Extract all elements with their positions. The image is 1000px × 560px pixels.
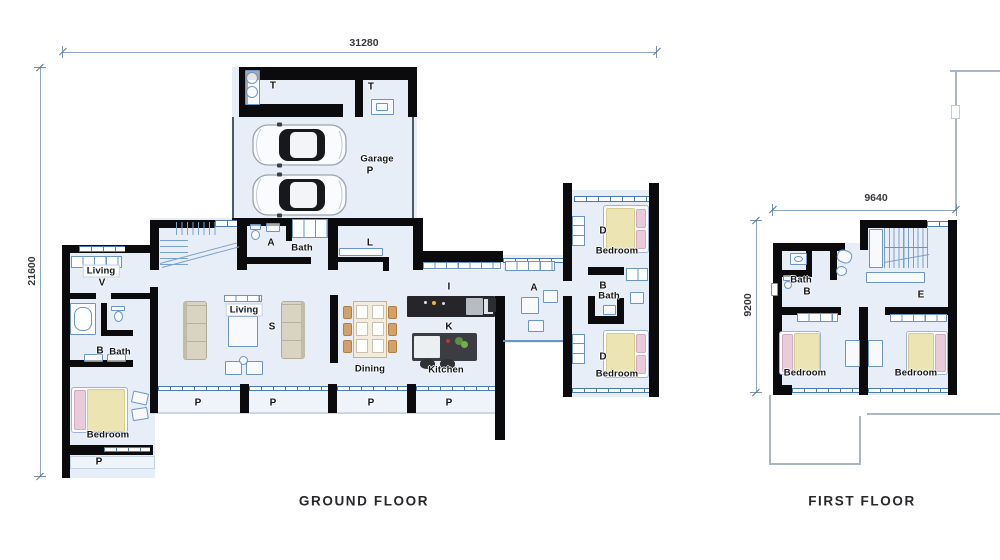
bed-pillow	[636, 334, 646, 353]
bed-pillow	[935, 334, 946, 372]
desk	[845, 340, 860, 367]
room-label-bedroom: Bedroom	[596, 246, 638, 257]
wall	[330, 295, 338, 363]
wall	[338, 257, 388, 262]
roof-outline	[769, 395, 771, 465]
place-setting	[372, 305, 384, 319]
dining-chair	[343, 323, 352, 336]
roof-outline	[769, 463, 861, 465]
refrigerator	[488, 298, 496, 312]
dimension-width: 9640	[861, 192, 890, 204]
window	[574, 196, 649, 202]
room-letter-p: P	[368, 398, 375, 409]
room-letter-l: L	[367, 238, 373, 249]
bed-pillow	[782, 334, 793, 372]
room-letter-b: B	[803, 287, 810, 298]
kitchen-cabinet	[423, 262, 501, 269]
wall	[495, 296, 505, 440]
room-label-dining: Dining	[355, 364, 385, 375]
cabinet	[521, 297, 539, 314]
dining-chair	[388, 306, 397, 319]
room-label-bedroom: Bedroom	[895, 368, 937, 379]
wall	[830, 246, 837, 280]
bed-duvet	[606, 208, 635, 250]
cabinet	[630, 292, 644, 304]
cabinet	[543, 290, 558, 303]
ground-floor-title: GROUND FLOOR	[299, 494, 429, 509]
place-setting	[356, 305, 368, 319]
wall	[859, 307, 868, 395]
dining-chair	[343, 306, 352, 319]
wall	[588, 296, 595, 324]
cabinet	[528, 320, 544, 332]
window	[792, 388, 859, 393]
dimension-line	[772, 210, 957, 211]
window	[927, 221, 948, 227]
dimension-height: 9200	[742, 290, 754, 319]
wardrobe	[572, 216, 585, 246]
place-setting	[372, 339, 384, 353]
room-letter-k: K	[445, 322, 452, 333]
roof-outline	[859, 416, 861, 465]
first-floor-title: FIRST FLOOR	[808, 494, 916, 509]
room-label-bath: Bath	[598, 291, 620, 302]
desk	[868, 340, 883, 367]
kitchen-item	[424, 301, 427, 304]
room-letter-p: P	[367, 166, 374, 177]
wall	[649, 183, 659, 397]
porch-pillar	[328, 384, 337, 413]
garage-side-line	[412, 117, 414, 218]
dimension-line	[756, 220, 757, 393]
shelf	[505, 261, 555, 271]
kitchen-item	[432, 301, 436, 305]
first-floor-plan: 9640 9200 Bath B E Bedroom Bedroom FIRST…	[0, 0, 300, 560]
roof-outline	[867, 413, 1000, 415]
room-letter-d: D	[599, 352, 606, 363]
sink	[603, 305, 616, 315]
room-letter-p: P	[446, 398, 453, 409]
room-letter-d: D	[599, 226, 606, 237]
room-letter-i: I	[448, 282, 451, 293]
dimension-width: 31280	[346, 37, 381, 49]
floor-plan-canvas: 31280 21600 T T Garage P A Bath L Living…	[0, 0, 1000, 560]
window-marker	[771, 283, 778, 296]
wall	[948, 220, 957, 395]
room-letter-a: A	[530, 283, 537, 294]
place-setting	[356, 339, 368, 353]
room-label-bedroom: Bedroom	[784, 368, 826, 379]
place-setting	[372, 322, 384, 336]
dining-chair	[388, 340, 397, 353]
roof-outline	[955, 70, 957, 210]
pouf	[836, 266, 847, 276]
kitchen-item	[442, 302, 445, 305]
counter-sink	[376, 103, 388, 111]
wall	[413, 251, 503, 262]
wardrobe	[797, 313, 838, 322]
wall	[861, 220, 927, 228]
island-worktop	[414, 336, 440, 358]
bed-pillow	[636, 209, 646, 228]
bench	[339, 248, 383, 256]
room-label-bedroom: Bedroom	[596, 369, 638, 380]
stair-divider	[884, 247, 928, 248]
place-setting	[356, 322, 368, 336]
closet	[626, 268, 648, 281]
wardrobe	[890, 314, 947, 322]
wall	[328, 218, 338, 270]
room-letter-e: E	[918, 290, 925, 301]
room-label-garage: Garage	[360, 154, 393, 165]
wall	[773, 385, 792, 395]
roof-outline-gap	[951, 105, 960, 119]
kitchen-appliance	[466, 298, 483, 315]
wall	[383, 257, 389, 271]
wall	[588, 267, 624, 275]
island-plant	[461, 341, 468, 348]
wall	[617, 298, 624, 324]
sink-basin	[794, 256, 803, 262]
room-letter-t: T	[368, 82, 374, 93]
wall	[408, 67, 417, 117]
wall	[355, 80, 363, 117]
window	[572, 388, 649, 393]
window	[337, 386, 407, 391]
stair-landing	[869, 229, 883, 268]
room-label-bath: Bath	[790, 275, 812, 286]
island-item	[446, 339, 450, 343]
roof-outline	[950, 70, 1000, 72]
wall	[413, 218, 423, 270]
wardrobe	[572, 334, 585, 364]
desk	[866, 272, 925, 283]
window	[868, 388, 948, 393]
porch-pillar	[407, 384, 416, 413]
wall	[860, 220, 868, 250]
room-label-kitchen: Kitchen	[428, 365, 464, 376]
wall	[563, 296, 572, 397]
dining-chair	[343, 340, 352, 353]
window	[416, 386, 495, 391]
dining-chair	[388, 323, 397, 336]
wall	[563, 183, 572, 281]
